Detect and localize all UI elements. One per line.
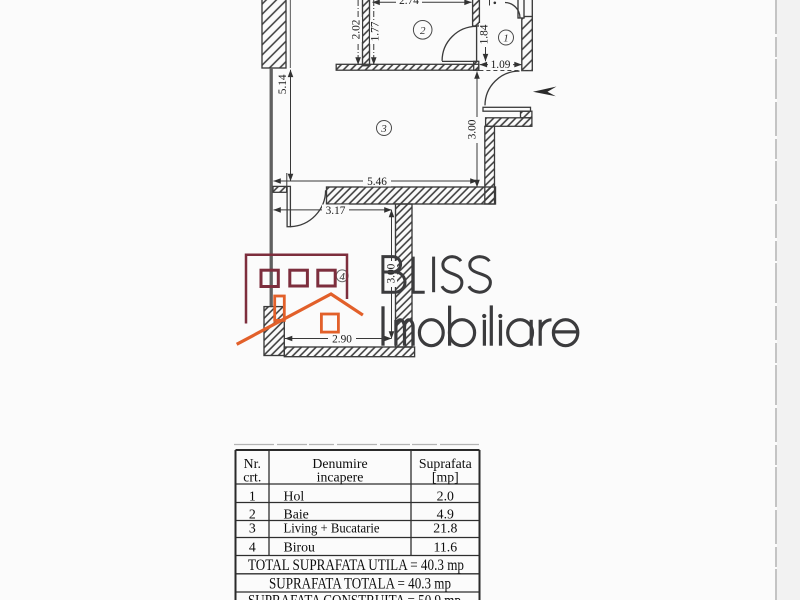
- svg-text:3.17: 3.17: [326, 205, 346, 217]
- svg-text:4: 4: [339, 271, 345, 283]
- svg-text:crt.: crt.: [243, 470, 261, 485]
- svg-text:Birou: Birou: [284, 540, 316, 555]
- svg-text:4.9: 4.9: [437, 507, 454, 522]
- svg-text:Hol: Hol: [284, 489, 305, 504]
- svg-text:5.14: 5.14: [277, 74, 289, 94]
- svg-text:TOTAL SUPRAFATA UTILA = 40.3 m: TOTAL SUPRAFATA UTILA = 40.3 mp: [248, 557, 464, 574]
- svg-text:incapere: incapere: [317, 470, 364, 485]
- svg-text:3.00: 3.00: [467, 119, 479, 139]
- svg-text:SUPRAFATA CONSTRUITA = 50.9 mp: SUPRAFATA CONSTRUITA = 50.9 mp: [248, 593, 461, 600]
- svg-text:2: 2: [249, 507, 256, 522]
- svg-text:21.8: 21.8: [433, 521, 457, 536]
- svg-text:11.6: 11.6: [433, 540, 457, 555]
- svg-text:2.90: 2.90: [332, 334, 352, 346]
- svg-text:2.74: 2.74: [399, 0, 419, 7]
- svg-text:2.0: 2.0: [437, 489, 454, 504]
- svg-text:[mp]: [mp]: [432, 470, 459, 485]
- svg-text:5.46: 5.46: [367, 176, 387, 188]
- svg-text:Living + Bucatarie: Living + Bucatarie: [284, 521, 380, 536]
- svg-text:1: 1: [503, 33, 509, 45]
- svg-text:3: 3: [249, 521, 256, 536]
- svg-text:2: 2: [420, 25, 426, 37]
- svg-text:4: 4: [249, 540, 256, 555]
- svg-text:1.09: 1.09: [491, 59, 511, 71]
- svg-text:Baie: Baie: [284, 507, 309, 522]
- svg-text:2.02: 2.02: [351, 19, 363, 39]
- svg-text:1: 1: [249, 489, 256, 504]
- svg-text:SUPRAFATA TOTALA = 40.3 mp: SUPRAFATA TOTALA = 40.3 mp: [269, 575, 451, 592]
- svg-text:3: 3: [380, 123, 387, 135]
- svg-text:1.77: 1.77: [370, 21, 382, 41]
- svg-text:1.84: 1.84: [479, 24, 491, 44]
